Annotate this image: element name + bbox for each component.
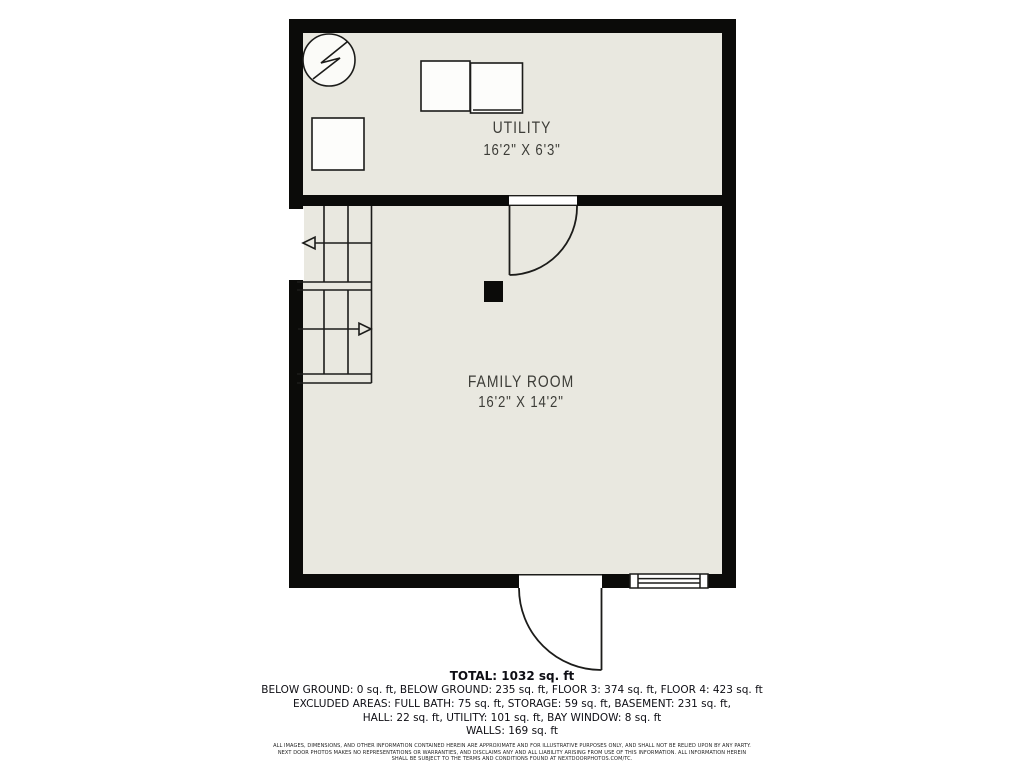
interior-door-opening: [509, 195, 577, 206]
window-icon: [630, 574, 708, 588]
utility-room-label: UTILITY: [493, 118, 552, 138]
floorplan-page: UTILITY 16'2" X 6'3" FAMILY ROOM 16'2" X…: [0, 0, 1024, 768]
floor-area: [303, 33, 722, 574]
exterior-door-opening: [519, 574, 602, 588]
electrical-panel-icon: [303, 34, 355, 86]
area-summary: TOTAL: 1032 sq. ft BELOW GROUND: 0 sq. f…: [0, 669, 1024, 762]
disclaimer-text: ALL IMAGES, DIMENSIONS, AND OTHER INFORM…: [0, 743, 1024, 762]
appliance-box-right: [471, 63, 523, 113]
disclaimer-line: SHALL BE SUBJECT TO THE TERMS AND CONDIT…: [0, 756, 1024, 762]
family-room-dimensions: 16'2" X 14'2": [478, 394, 564, 412]
exterior-door-swing-icon: [519, 588, 602, 670]
appliance-box-left: [421, 61, 470, 111]
utility-room-dimensions: 16'2" X 6'3": [483, 142, 560, 160]
excluded-areas-line2: HALL: 22 sq. ft, UTILITY: 101 sq. ft, BA…: [0, 712, 1024, 726]
excluded-areas-line: EXCLUDED AREAS: FULL BATH: 75 sq. ft, ST…: [0, 698, 1024, 712]
total-area-text: TOTAL: 1032 sq. ft: [0, 669, 1024, 684]
area-breakdown-line: BELOW GROUND: 0 sq. ft, BELOW GROUND: 23…: [0, 684, 1024, 698]
stair-wall-opening: [288, 209, 304, 280]
walls-area-line: WALLS: 169 sq. ft: [0, 725, 1024, 739]
support-post-icon: [484, 281, 503, 302]
appliance-box-small: [312, 118, 364, 170]
family-room-label: FAMILY ROOM: [468, 372, 574, 392]
